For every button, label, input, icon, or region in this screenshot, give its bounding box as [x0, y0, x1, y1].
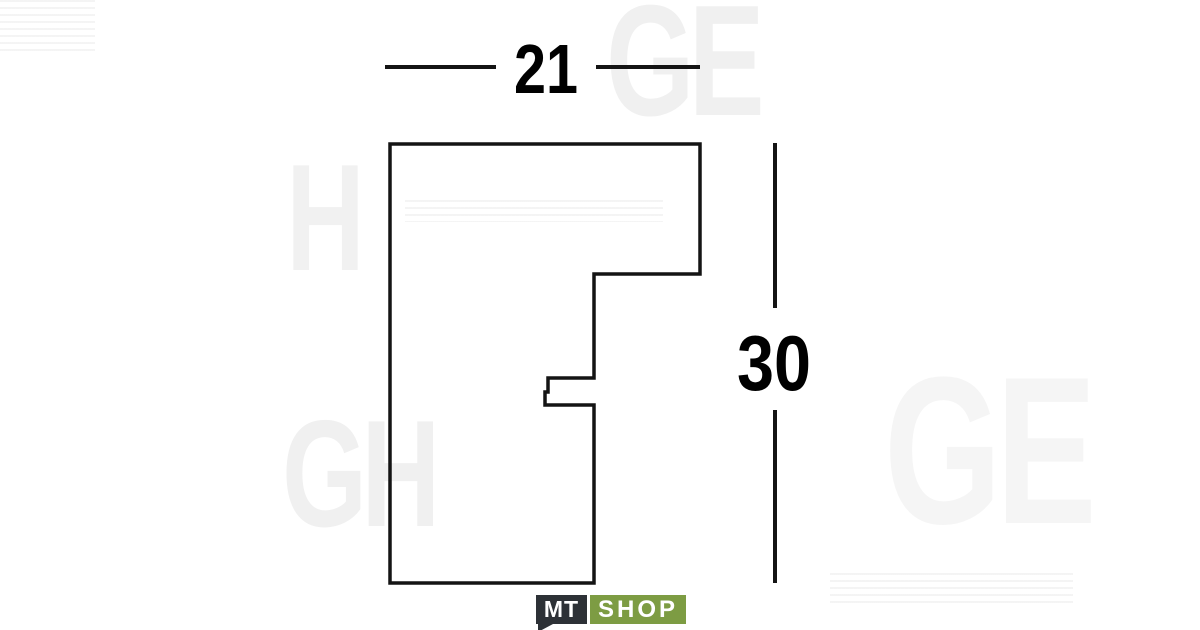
logo-shop-label: SHOP [598, 598, 678, 622]
product-image: GE H GH GE 21 30 MT SHOP [0, 0, 1200, 630]
logo-mt-label: MT [544, 598, 579, 621]
height-dimension-label: 30 [737, 319, 811, 407]
logo-shop-box: SHOP [590, 595, 686, 624]
width-dimension-label: 21 [514, 30, 578, 108]
profile-diagram: 21 30 [0, 0, 1200, 630]
logo-mt-box: MT [536, 595, 587, 624]
profile-outline [390, 144, 700, 583]
mt-shop-logo: MT SHOP [536, 595, 686, 624]
